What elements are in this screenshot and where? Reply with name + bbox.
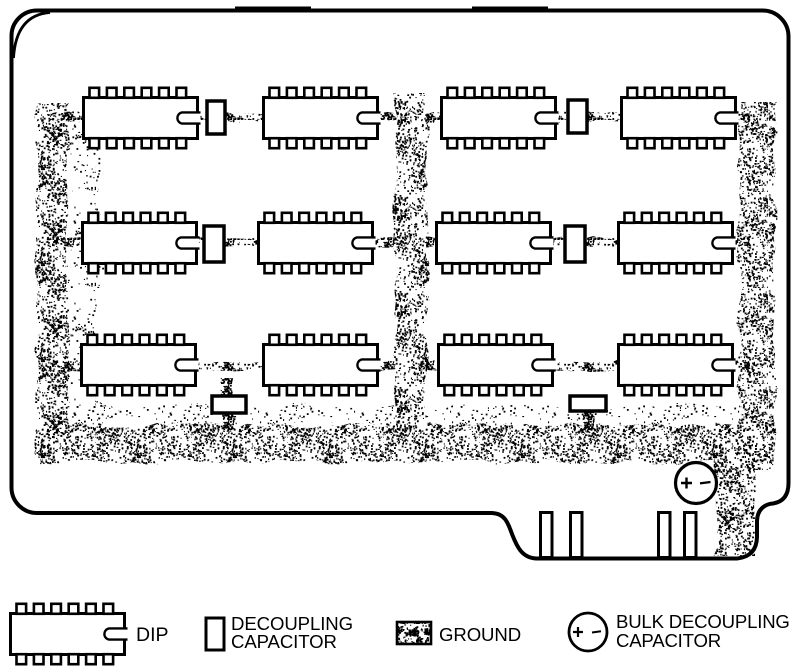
svg-text:CAPACITOR: CAPACITOR xyxy=(616,630,721,651)
svg-text:CAPACITOR: CAPACITOR xyxy=(231,631,337,652)
svg-text:GROUND: GROUND xyxy=(439,624,521,645)
svg-text:BULK DECOUPLING: BULK DECOUPLING xyxy=(616,611,790,632)
svg-text:DIP: DIP xyxy=(136,624,169,646)
